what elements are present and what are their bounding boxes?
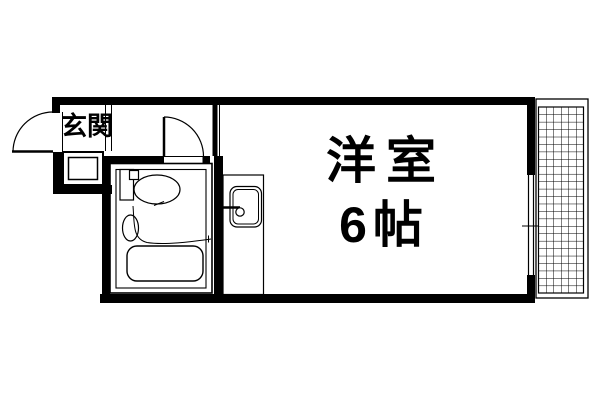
bathroom-door-threshold [164, 157, 204, 164]
bathtub-icon [127, 246, 203, 281]
entrance-door-icon [12, 112, 53, 152]
main-room-label: 洋室 6帖 [256, 131, 506, 255]
wall-hall-partition [213, 104, 218, 156]
wall-right-lower [527, 275, 535, 302]
wall-kitchen-left [214, 156, 223, 302]
toilet-flush-knob [130, 171, 139, 180]
main-room-size: 6帖 [256, 195, 506, 255]
bathroom-area [110, 164, 212, 294]
toilet-icon [120, 170, 180, 206]
wall-right-upper [527, 105, 535, 175]
entrance-label: 玄関 [58, 111, 116, 141]
wall-bottom [100, 294, 535, 303]
balcony-hatch-grid [539, 107, 584, 293]
toilet-bowl [134, 175, 180, 204]
bathroom-door-icon [164, 117, 204, 164]
balcony-area [536, 99, 588, 298]
hand-basin-icon [123, 215, 139, 241]
shoe-cabinet-icon [63, 152, 103, 185]
shoe-cabinet-inner [69, 158, 98, 180]
bath-floor-curve [133, 206, 211, 244]
kitchen-faucet-head [236, 208, 244, 216]
main-room-name: 洋室 [256, 131, 506, 191]
entrance-door-swing-arc [13, 112, 53, 152]
wall-top [52, 97, 535, 105]
floor-plan: 玄関 洋室 6帖 [0, 0, 600, 400]
bathroom-door-swing-arc [164, 117, 204, 157]
